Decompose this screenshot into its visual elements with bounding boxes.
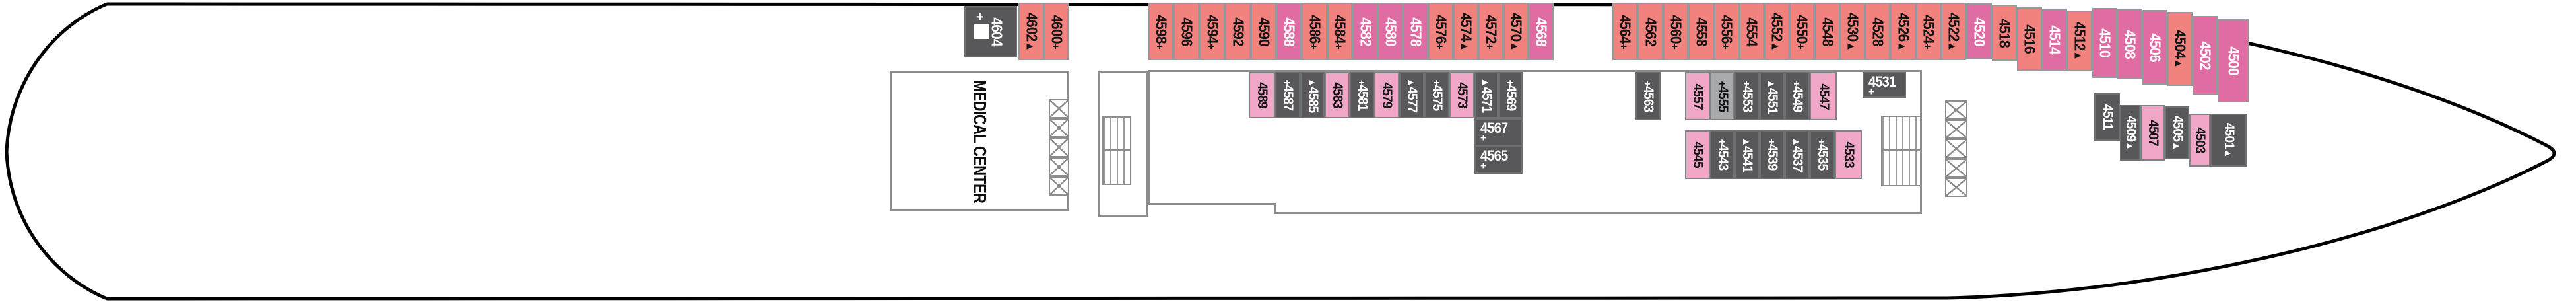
cabin-number: 4531+ <box>1868 76 1896 96</box>
cabin-4576[interactable]: 4576+ <box>1428 3 1453 60</box>
cabin-4590[interactable]: 4590 <box>1251 3 1276 60</box>
triangle-icon: ▲ <box>2124 141 2135 150</box>
cabin-4505[interactable]: 4505▲ <box>2165 106 2189 159</box>
cabin-4553[interactable]: +4553 <box>1734 72 1760 120</box>
cabin-number: 4509▲ <box>2123 116 2138 151</box>
plus-icon: + <box>1766 139 1777 144</box>
elevator-icon <box>1049 99 1069 118</box>
cabin-number: 4558 <box>1692 17 1710 46</box>
elevator-icon <box>1049 137 1069 157</box>
cabin-number: 4524+ <box>1920 15 1938 49</box>
plus-icon: + <box>1281 80 1292 85</box>
plus-icon: + <box>1049 43 1061 48</box>
cabin-number: 4602▲ <box>1022 13 1040 51</box>
cabin-number: 4583 <box>1329 82 1345 108</box>
cabin-number: 4510 <box>2096 28 2114 57</box>
cabin-4501[interactable]: 4501▲ <box>2210 114 2247 167</box>
triangle-icon: ▲ <box>1791 137 1802 146</box>
elevator-icon <box>1945 159 1967 178</box>
cabin-4545[interactable]: 4545 <box>1685 130 1710 179</box>
cabin-4582[interactable]: 4582 <box>1352 3 1378 60</box>
cabin-number: 4507 <box>2145 120 2161 145</box>
cabin-4577[interactable]: ▲4577 <box>1399 72 1424 118</box>
cabin-4511[interactable]: 4511 <box>2094 93 2120 141</box>
triangle-icon: ▲ <box>1024 41 1036 51</box>
stairs-rail <box>1104 149 1130 151</box>
plus-icon: + <box>1484 43 1496 48</box>
plus-icon: + <box>1719 43 1732 48</box>
cabin-4558[interactable]: 4558 <box>1688 3 1714 60</box>
cabin-number: +4539 <box>1764 139 1780 171</box>
medical-center-room: MEDICAL CENTER <box>890 71 1069 211</box>
plus-icon: + <box>1795 43 1807 48</box>
cabin-4584[interactable]: 4584+ <box>1327 3 1352 60</box>
cabin-4524[interactable]: 4524+ <box>1916 3 1941 60</box>
cabin-number: 4556+ <box>1718 15 1736 49</box>
cabin-4567[interactable]: 4567+ <box>1474 118 1523 146</box>
cabin-number: 4552▲ <box>1768 13 1786 51</box>
cabin-4557[interactable]: 4557 <box>1685 72 1710 120</box>
cabin-number: 4512▲ <box>2071 22 2089 60</box>
elevator-icon <box>1945 139 1967 158</box>
cabin-4522[interactable]: 4522▲ <box>1941 3 1966 60</box>
cabin-number: ▲4571 <box>1478 78 1494 113</box>
cabin-number: 4588 <box>1280 17 1298 46</box>
cabin-4547[interactable]: 4547 <box>1810 72 1837 120</box>
cabin-number: 4560+ <box>1667 15 1685 49</box>
cabin-number: 4554 <box>1743 17 1761 46</box>
plus-icon: + <box>1504 80 1515 85</box>
cabin-4574[interactable]: 4574▲ <box>1453 3 1478 60</box>
cabin-4520[interactable]: 4520 <box>1966 3 1992 59</box>
cabin-4598[interactable]: 4598+ <box>1148 3 1173 60</box>
elevator-icon <box>1049 157 1069 176</box>
cabin-number: 4514 <box>2046 25 2064 54</box>
cabin-4570[interactable]: 4570▲ <box>1503 3 1529 60</box>
cabin-4555[interactable]: +4555 <box>1710 72 1734 120</box>
cabin-number: 4557 <box>1690 83 1705 109</box>
cabin-number: 4503 <box>2192 127 2208 153</box>
triangle-icon: ▲ <box>1845 41 1858 51</box>
cabin-4575[interactable]: +4575 <box>1424 72 1449 118</box>
cabin-number: 4590 <box>1255 17 1272 46</box>
triangle-icon: ▲ <box>1769 41 1782 51</box>
cabin-number: 4598+ <box>1152 15 1170 49</box>
plus-icon: + <box>976 10 984 25</box>
cabin-4586[interactable]: 4586+ <box>1302 3 1327 60</box>
cabin-number: 4596 <box>1177 17 1195 46</box>
stairs-icon <box>1881 116 1921 186</box>
cabin-4549[interactable]: +4549 <box>1785 72 1810 120</box>
plus-icon: + <box>1434 43 1446 48</box>
cabin-number: 4545 <box>1690 141 1705 167</box>
cabin-4565[interactable]: 4565+ <box>1474 146 1523 174</box>
cabin-4585[interactable]: ▲4585 <box>1300 72 1325 118</box>
cabin-4554[interactable]: 4554 <box>1739 3 1764 60</box>
cabin-number: 4565+ <box>1480 150 1507 171</box>
elevator-icon <box>1945 100 1967 120</box>
cabin-number: 4533 <box>1841 141 1857 167</box>
cabin-4507[interactable]: 4507 <box>2140 105 2165 161</box>
medical-center-label: MEDICAL CENTER <box>970 79 990 202</box>
deck-plan: MEDICAL CENTER ↔↔↔↔↔+46044602▲4600+4598+… <box>0 0 2576 304</box>
cabin-number: 4520 <box>1970 17 1988 46</box>
cabin-number: 4504▲ <box>2171 30 2189 68</box>
stairs-icon <box>1102 116 1131 185</box>
cabin-number: +4543 <box>1715 139 1731 171</box>
cabin-4573[interactable]: 4573 <box>1449 72 1474 118</box>
cabin-number: 4578 <box>1407 17 1425 46</box>
cabin-4514[interactable]: 4514 <box>2042 9 2067 71</box>
cabin-number: 4576+ <box>1432 15 1450 49</box>
triangle-icon: ▲ <box>1740 137 1752 146</box>
cabin-number: 4508 <box>2121 30 2139 58</box>
cabin-4587[interactable]: +4587 <box>1275 72 1300 118</box>
cabin-4548[interactable]: 4548 <box>1814 3 1840 60</box>
cabin-4568[interactable]: 4568 <box>1529 3 1554 60</box>
cabin-number: 4600+ <box>1047 15 1065 49</box>
cabin-number: 4506 <box>2146 33 2164 61</box>
corridor-wall <box>1148 203 1276 205</box>
cabin-number: +4555 <box>1715 81 1731 112</box>
plus-icon: + <box>1205 43 1217 48</box>
cabin-number: 4592 <box>1229 17 1247 46</box>
cabin-4583[interactable]: 4583 <box>1325 72 1350 118</box>
corridor-wall <box>1274 212 1922 214</box>
cabin-number: +4569 <box>1503 80 1519 111</box>
triangle-icon: ▲ <box>2171 141 2182 150</box>
cabin-4588[interactable]: 4588 <box>1276 3 1302 60</box>
cabin-4604[interactable]: +4604 <box>964 6 1017 57</box>
cabin-4581[interactable]: +4581 <box>1350 72 1374 118</box>
cabin-number: 4568 <box>1533 17 1550 46</box>
plus-icon: + <box>1618 43 1630 48</box>
cabin-4579[interactable]: 4579 <box>1374 72 1399 118</box>
plus-icon: + <box>1641 81 1653 85</box>
cabin-number: ▲4537 <box>1789 137 1805 172</box>
cabin-4552[interactable]: 4552▲ <box>1764 3 1789 60</box>
cabin-4589[interactable]: 4589 <box>1249 72 1275 118</box>
cabin-number: 4567+ <box>1480 122 1507 143</box>
cabin-4526[interactable]: 4526▲ <box>1890 3 1916 60</box>
cabin-number: 4586+ <box>1305 15 1323 49</box>
cabin-number: 4594+ <box>1203 15 1221 49</box>
cabin-number: 4522▲ <box>1945 13 1963 51</box>
cabin-number: +4549 <box>1789 81 1805 112</box>
cabin-4541[interactable]: ▲4541 <box>1734 130 1760 179</box>
cabin-number: 4604 <box>988 17 1006 46</box>
cabin-number: +4535 <box>1814 139 1830 171</box>
cabin-4592[interactable]: 4592 <box>1225 3 1251 60</box>
cabin-4596[interactable]: 4596 <box>1173 3 1199 60</box>
cabin-4506[interactable]: 4506 <box>2142 10 2167 85</box>
plus-icon: + <box>1307 43 1319 48</box>
cabin-4556[interactable]: 4556+ <box>1714 3 1739 60</box>
cabin-4569[interactable]: +4569 <box>1498 72 1523 118</box>
elevator-bank <box>1945 100 1967 197</box>
corridor-wall <box>1148 70 1150 205</box>
cabin-number: +4553 <box>1739 81 1755 112</box>
cabin-4509[interactable]: 4509▲ <box>2120 105 2140 161</box>
stairs-rail <box>1882 149 1920 151</box>
triangle-icon: ▲ <box>1509 41 1521 51</box>
triangle-icon: ▲ <box>1459 41 1471 51</box>
triangle-icon: ▲ <box>1405 78 1416 87</box>
cabin-4502[interactable]: 4502 <box>2193 16 2218 95</box>
cabin-number: 4580 <box>1382 17 1400 46</box>
cabin-number: 4528 <box>1869 17 1887 46</box>
cabin-number: 4582 <box>1356 17 1374 46</box>
triangle-icon: ▲ <box>1896 41 1908 51</box>
cabin-4500[interactable]: 4500 <box>2218 19 2249 102</box>
cabin-number: 4589 <box>1254 82 1270 108</box>
triangle-icon: ▲ <box>1480 78 1491 87</box>
cabin-4530[interactable]: 4530▲ <box>1840 3 1865 60</box>
cabin-number: ▲4577 <box>1404 78 1420 113</box>
cabin-4560[interactable]: 4560+ <box>1663 3 1688 60</box>
cabin-number: 4584+ <box>1331 15 1349 49</box>
cabin-number: +4581 <box>1354 80 1370 111</box>
triangle-icon: ▲ <box>1766 79 1777 87</box>
cabin-4550[interactable]: 4550+ <box>1789 3 1814 60</box>
cabin-number: 4564+ <box>1616 15 1634 49</box>
cabin-4516[interactable]: 4516 <box>2017 7 2042 71</box>
plus-icon: + <box>1921 43 1934 48</box>
plus-icon: + <box>1716 81 1727 85</box>
cabin-number: +4587 <box>1280 80 1296 111</box>
cabin-number: 4530▲ <box>1844 13 1862 51</box>
cabin-number: +4563 <box>1640 81 1656 112</box>
cabin-4602[interactable]: 4602▲ <box>1018 3 1044 60</box>
cabin-4503[interactable]: 4503 <box>2189 114 2210 167</box>
cabin-4508[interactable]: 4508 <box>2117 9 2142 79</box>
plus-icon: + <box>1430 80 1441 85</box>
cabin-number: 4500 <box>2224 46 2242 75</box>
elevator-icon <box>1945 178 1967 197</box>
cabin-4539[interactable]: +4539 <box>1760 130 1785 179</box>
triangle-icon: ▲ <box>2072 50 2085 60</box>
cabin-4571[interactable]: ▲4571 <box>1474 72 1498 118</box>
triangle-icon: ▲ <box>1946 41 1959 51</box>
cabin-4594[interactable]: 4594+ <box>1199 3 1225 60</box>
cabin-number: 4516 <box>2021 24 2039 53</box>
cabin-number: ▲4541 <box>1739 137 1755 172</box>
plus-icon: + <box>1716 139 1727 144</box>
cabin-number: 4501▲ <box>2221 123 2237 158</box>
cabin-4512[interactable]: 4512▲ <box>2067 11 2092 71</box>
cabin-4528[interactable]: 4528 <box>1865 3 1890 60</box>
cabin-4580[interactable]: 4580 <box>1378 3 1403 60</box>
elevator-icon <box>1049 176 1069 196</box>
cabin-number: 4548 <box>1818 17 1836 46</box>
plus-icon: + <box>1791 81 1802 85</box>
cabin-4564[interactable]: 4564+ <box>1612 3 1637 60</box>
cabin-number: +4575 <box>1429 80 1445 111</box>
cabin-4600[interactable]: 4600+ <box>1044 3 1069 60</box>
cabin-4533[interactable]: 4533 <box>1835 130 1862 179</box>
plus-icon: + <box>1356 80 1367 85</box>
cabin-number: ▲4551 <box>1764 79 1780 114</box>
cabin-4518[interactable]: 4518 <box>1992 5 2017 61</box>
cabin-number: 4562 <box>1641 17 1659 46</box>
accessible-square-icon <box>974 24 989 39</box>
cabin-number: 4505▲ <box>2169 116 2185 151</box>
cabin-number: ▲4585 <box>1305 78 1321 113</box>
cabin-number: 4526▲ <box>1894 13 1912 51</box>
cabin-4510[interactable]: 4510 <box>2092 8 2117 78</box>
plus-icon: + <box>1816 139 1827 144</box>
cabin-number: 4572+ <box>1482 15 1500 49</box>
cabin-4537[interactable]: ▲4537 <box>1785 130 1810 179</box>
cabin-4504[interactable]: 4504▲ <box>2167 12 2193 86</box>
elevator-icon <box>1945 120 1967 139</box>
triangle-icon: ▲ <box>2173 58 2185 68</box>
elevator-bank <box>1049 99 1069 196</box>
cabin-number: 4579 <box>1379 82 1395 108</box>
cabin-number: 4550+ <box>1793 15 1811 49</box>
plus-icon: + <box>1668 43 1681 48</box>
elevator-icon <box>1049 118 1069 137</box>
cabin-4562[interactable]: 4562 <box>1637 3 1663 60</box>
cabin-number: 4547 <box>1816 83 1832 109</box>
cabin-4543[interactable]: +4543 <box>1710 130 1734 179</box>
plus-icon: + <box>1740 81 1752 85</box>
cabin-4572[interactable]: 4572+ <box>1478 3 1503 60</box>
cabin-4551[interactable]: ▲4551 <box>1760 72 1785 120</box>
triangle-icon: ▲ <box>2222 149 2233 157</box>
plus-icon: + <box>1154 43 1166 48</box>
cabin-number: 4570▲ <box>1507 13 1525 51</box>
cabin-4531[interactable]: 4531+ <box>1863 72 1906 98</box>
cabin-number: 4574▲ <box>1457 13 1475 51</box>
cabin-number: 4573 <box>1454 82 1470 108</box>
cabin-4578[interactable]: 4578 <box>1403 3 1428 60</box>
plus-icon: + <box>1333 43 1345 48</box>
cabin-number: 4511 <box>2099 104 2115 130</box>
cabin-4563[interactable]: +4563 <box>1635 72 1661 120</box>
cabin-number: 4518 <box>1996 19 2014 47</box>
cabin-number: 4502 <box>2196 41 2214 69</box>
triangle-icon: ▲ <box>1306 78 1317 87</box>
cabin-4535[interactable]: +4535 <box>1810 130 1835 179</box>
